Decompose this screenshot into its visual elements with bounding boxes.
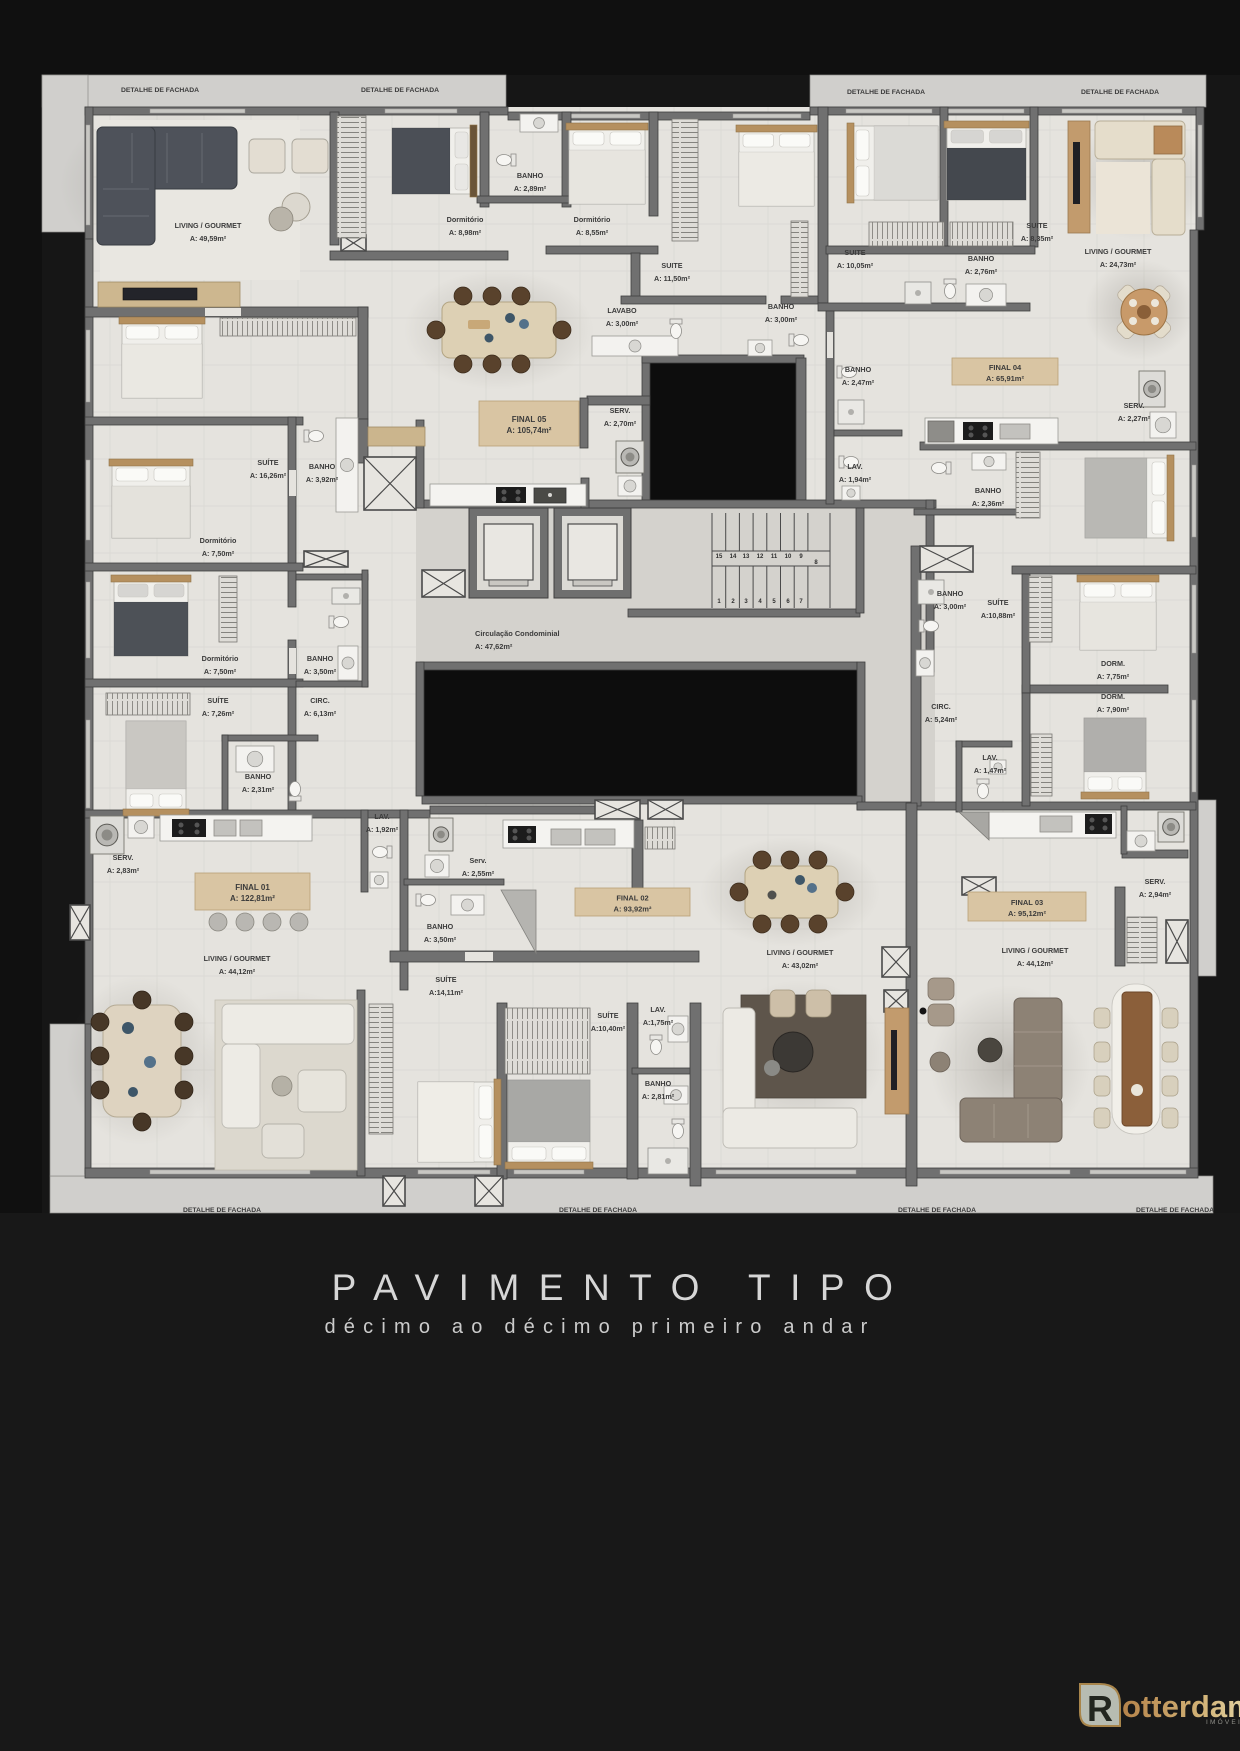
svg-text:A: 3,92m²: A: 3,92m² bbox=[306, 475, 339, 484]
svg-text:R: R bbox=[1087, 1688, 1113, 1729]
svg-text:Dormitório: Dormitório bbox=[202, 654, 239, 663]
svg-text:BANHO: BANHO bbox=[937, 589, 964, 598]
svg-text:Dormitório: Dormitório bbox=[574, 215, 611, 224]
svg-text:BANHO: BANHO bbox=[245, 772, 272, 781]
svg-text:A: 1,92m²: A: 1,92m² bbox=[366, 825, 399, 834]
svg-text:A: 2,55m²: A: 2,55m² bbox=[462, 869, 495, 878]
svg-text:DETALHE DE FACHADA: DETALHE DE FACHADA bbox=[1136, 1207, 1214, 1214]
svg-text:A: 44,12m²: A: 44,12m² bbox=[219, 967, 256, 976]
svg-text:A: 3,00m²: A: 3,00m² bbox=[934, 602, 967, 611]
svg-text:DETALHE DE FACHADA: DETALHE DE FACHADA bbox=[898, 1207, 976, 1214]
svg-text:A:10,40m²: A:10,40m² bbox=[591, 1024, 626, 1033]
svg-text:A: 7,50m²: A: 7,50m² bbox=[204, 667, 237, 676]
svg-text:10: 10 bbox=[785, 554, 792, 560]
svg-text:SUÍTE: SUÍTE bbox=[597, 1011, 618, 1020]
svg-text:A: 2,27m²: A: 2,27m² bbox=[1118, 414, 1151, 423]
svg-text:A: 8,55m²: A: 8,55m² bbox=[576, 228, 609, 237]
svg-text:DETALHE DE FACHADA: DETALHE DE FACHADA bbox=[361, 87, 439, 94]
svg-text:Dormitório: Dormitório bbox=[447, 215, 484, 224]
svg-text:A: 8,98m²: A: 8,98m² bbox=[449, 228, 482, 237]
svg-text:A: 7,26m²: A: 7,26m² bbox=[202, 709, 235, 718]
svg-text:A: 11,50m²: A: 11,50m² bbox=[654, 274, 691, 283]
svg-text:A:10,88m²: A:10,88m² bbox=[981, 611, 1016, 620]
svg-text:BANHO: BANHO bbox=[307, 654, 334, 663]
svg-text:BANHO: BANHO bbox=[645, 1079, 672, 1088]
svg-text:A: 1,47m²: A: 1,47m² bbox=[974, 766, 1007, 775]
svg-text:SERV.: SERV. bbox=[113, 853, 134, 862]
svg-text:A: 2,94m²: A: 2,94m² bbox=[1139, 890, 1172, 899]
svg-text:Serv.: Serv. bbox=[469, 856, 486, 865]
svg-text:LAV.: LAV. bbox=[982, 753, 997, 762]
svg-text:A: 122,81m²: A: 122,81m² bbox=[230, 894, 275, 903]
svg-text:LAV.: LAV. bbox=[374, 812, 389, 821]
svg-text:A: 3,50m²: A: 3,50m² bbox=[424, 935, 457, 944]
svg-text:DORM.: DORM. bbox=[1101, 692, 1125, 701]
svg-text:A: 47,62m²: A: 47,62m² bbox=[475, 642, 513, 651]
svg-text:LAV.: LAV. bbox=[650, 1005, 665, 1014]
svg-text:DETALHE DE FACHADA: DETALHE DE FACHADA bbox=[183, 1207, 261, 1214]
svg-text:A: 1,94m²: A: 1,94m² bbox=[839, 475, 872, 484]
svg-text:PAVIMENTO TIPO: PAVIMENTO TIPO bbox=[332, 1267, 913, 1308]
svg-text:A: 2,81m²: A: 2,81m² bbox=[642, 1092, 675, 1101]
svg-text:A: 2,47m²: A: 2,47m² bbox=[842, 378, 875, 387]
svg-text:A: 5,24m²: A: 5,24m² bbox=[925, 715, 958, 724]
svg-text:CIRC.: CIRC. bbox=[931, 702, 951, 711]
svg-text:A: 43,02m²: A: 43,02m² bbox=[782, 961, 819, 970]
svg-text:A: 7,50m²: A: 7,50m² bbox=[202, 549, 235, 558]
svg-text:A: 2,89m²: A: 2,89m² bbox=[514, 184, 547, 193]
svg-text:LIVING / GOURMET: LIVING / GOURMET bbox=[204, 954, 271, 963]
svg-text:BANHO: BANHO bbox=[309, 462, 336, 471]
svg-text:décimo ao décimo primeiro anda: décimo ao décimo primeiro andar bbox=[324, 1316, 875, 1338]
svg-text:SUÍTE: SUÍTE bbox=[987, 598, 1008, 607]
svg-text:A: 7,75m²: A: 7,75m² bbox=[1097, 672, 1130, 681]
svg-text:SERV.: SERV. bbox=[1124, 401, 1145, 410]
svg-text:DETALHE DE FACHADA: DETALHE DE FACHADA bbox=[559, 1207, 637, 1214]
svg-text:13: 13 bbox=[743, 554, 750, 560]
svg-text:BANHO: BANHO bbox=[968, 254, 995, 263]
svg-text:LIVING / GOURMET: LIVING / GOURMET bbox=[1085, 247, 1152, 256]
svg-text:Dormitório: Dormitório bbox=[200, 536, 237, 545]
svg-text:A: 16,26m²: A: 16,26m² bbox=[250, 471, 287, 480]
svg-text:SUÍTE: SUÍTE bbox=[435, 975, 456, 984]
svg-text:A: 3,00m²: A: 3,00m² bbox=[606, 319, 639, 328]
svg-text:A: 2,36m²: A: 2,36m² bbox=[972, 499, 1005, 508]
svg-text:A: 2,83m²: A: 2,83m² bbox=[107, 866, 140, 875]
svg-text:A: 93,92m²: A: 93,92m² bbox=[614, 905, 652, 914]
svg-text:11: 11 bbox=[771, 554, 778, 560]
svg-text:DETALHE DE FACHADA: DETALHE DE FACHADA bbox=[121, 87, 199, 94]
svg-text:A: 2,76m²: A: 2,76m² bbox=[965, 267, 998, 276]
svg-text:BANHO: BANHO bbox=[517, 171, 544, 180]
svg-text:SUITE: SUITE bbox=[1026, 221, 1047, 230]
svg-text:FINAL 05: FINAL 05 bbox=[512, 415, 547, 424]
svg-text:A: 10,05m²: A: 10,05m² bbox=[837, 261, 874, 270]
svg-text:SERV.: SERV. bbox=[610, 406, 631, 415]
svg-text:BANHO: BANHO bbox=[768, 302, 795, 311]
svg-text:DORM.: DORM. bbox=[1101, 659, 1125, 668]
svg-text:SERV.: SERV. bbox=[1145, 877, 1166, 886]
svg-text:A: 65,91m²: A: 65,91m² bbox=[986, 374, 1024, 383]
svg-text:A: 6,13m²: A: 6,13m² bbox=[304, 709, 337, 718]
svg-text:A: 2,70m²: A: 2,70m² bbox=[604, 419, 637, 428]
svg-text:BANHO: BANHO bbox=[427, 922, 454, 931]
svg-text:A:1,75m²: A:1,75m² bbox=[643, 1018, 674, 1027]
svg-text:12: 12 bbox=[757, 554, 764, 560]
svg-text:LIVING / GOURMET: LIVING / GOURMET bbox=[175, 221, 242, 230]
svg-text:A: 2,31m²: A: 2,31m² bbox=[242, 785, 275, 794]
svg-text:A: 8,35m²: A: 8,35m² bbox=[1021, 234, 1054, 243]
svg-text:FINAL 01: FINAL 01 bbox=[235, 883, 270, 892]
svg-text:LIVING / GOURMET: LIVING / GOURMET bbox=[1002, 946, 1069, 955]
svg-text:DETALHE DE FACHADA: DETALHE DE FACHADA bbox=[847, 89, 925, 96]
svg-text:A: 3,00m²: A: 3,00m² bbox=[765, 315, 798, 324]
svg-text:A: 3,50m²: A: 3,50m² bbox=[304, 667, 337, 676]
svg-text:LAVABO: LAVABO bbox=[607, 306, 637, 315]
svg-text:14: 14 bbox=[730, 554, 737, 560]
svg-text:A: 24,73m²: A: 24,73m² bbox=[1100, 260, 1137, 269]
svg-text:A: 44,12m²: A: 44,12m² bbox=[1017, 959, 1054, 968]
svg-text:CIRC.: CIRC. bbox=[310, 696, 330, 705]
svg-text:FINAL 02: FINAL 02 bbox=[616, 894, 648, 903]
svg-text:SUITE: SUITE bbox=[844, 248, 865, 257]
svg-text:SUÍTE: SUÍTE bbox=[207, 696, 228, 705]
svg-text:Circulação Condominial: Circulação Condominial bbox=[475, 629, 560, 638]
svg-text:SUÍTE: SUÍTE bbox=[257, 458, 278, 467]
svg-text:A: 7,90m²: A: 7,90m² bbox=[1097, 705, 1130, 714]
svg-text:FINAL 03: FINAL 03 bbox=[1011, 898, 1043, 907]
svg-text:DETALHE DE FACHADA: DETALHE DE FACHADA bbox=[1081, 89, 1159, 96]
svg-text:A: 49,59m²: A: 49,59m² bbox=[190, 234, 227, 243]
svg-text:SUITE: SUITE bbox=[661, 261, 682, 270]
svg-text:A: 105,74m²: A: 105,74m² bbox=[507, 426, 552, 435]
svg-text:BANHO: BANHO bbox=[845, 365, 872, 374]
svg-text:BANHO: BANHO bbox=[975, 486, 1002, 495]
svg-text:A:14,11m²: A:14,11m² bbox=[429, 988, 464, 997]
svg-text:FINAL 04: FINAL 04 bbox=[989, 363, 1022, 372]
svg-text:A: 95,12m²: A: 95,12m² bbox=[1008, 909, 1046, 918]
svg-text:IMÓVEIS: IMÓVEIS bbox=[1206, 1717, 1240, 1726]
svg-text:15: 15 bbox=[716, 554, 723, 560]
svg-text:LAV.: LAV. bbox=[847, 462, 862, 471]
svg-text:LIVING / GOURMET: LIVING / GOURMET bbox=[767, 948, 834, 957]
